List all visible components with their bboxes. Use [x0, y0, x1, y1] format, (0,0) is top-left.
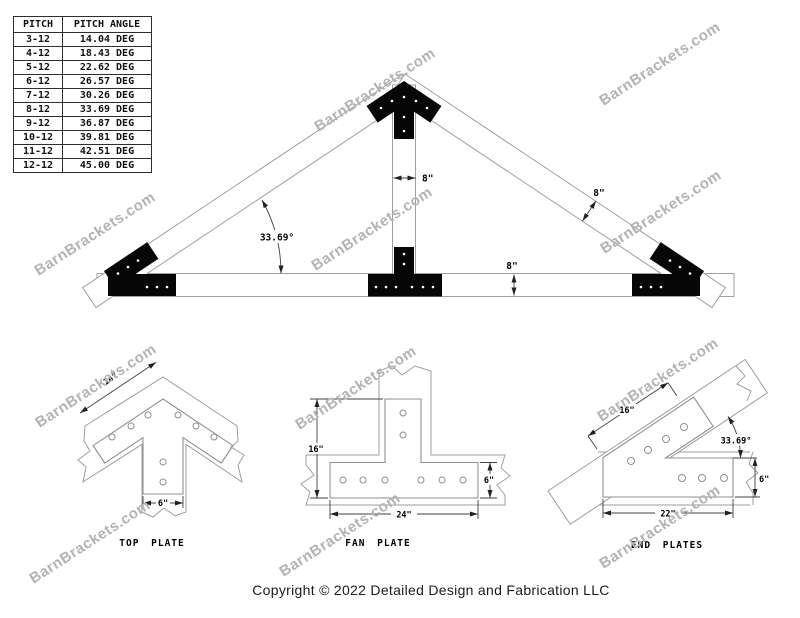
top-plate-leg-dim: 6" — [158, 499, 168, 509]
fan-plate-detail: 16" 24" 6" FAN PLATE — [301, 366, 510, 549]
fan-plate-holes — [340, 410, 466, 483]
drawing-sheet: PITCH PITCH ANGLE 3-1214.04 DEG4-1218.43… — [0, 0, 800, 618]
top-plate-holes — [109, 412, 217, 485]
truss-drawing: 33.69° 8" 8" 8" — [0, 0, 800, 618]
top-plate-detail: 14" 6" TOP PLATE — [78, 362, 244, 549]
fan-bracket — [368, 247, 442, 297]
end-plates-detail: 16" 33.69° 22" 6" END PLATES — [548, 360, 769, 552]
end-plate-arm-dim: 16" — [619, 406, 634, 416]
rafter-dim-label: 8" — [593, 188, 604, 199]
fan-plate-width-dim: 24" — [396, 511, 411, 521]
truss-angle-label: 33.69° — [260, 233, 294, 244]
peak-bracket — [367, 81, 442, 139]
fan-plate-title: FAN PLATE — [345, 538, 410, 549]
king-post-dim-label: 8" — [422, 174, 433, 185]
top-plate-title: TOP PLATE — [119, 538, 184, 549]
copyright-text: Copyright © 2022 Detailed Design and Fab… — [131, 582, 731, 598]
top-plate-arm-dim: 14" — [102, 371, 120, 388]
end-plate-length-dim: 22" — [660, 510, 675, 520]
fan-plate-height-dim: 16" — [308, 445, 323, 455]
end-plates-title: END PLATES — [631, 540, 703, 551]
fan-plate-dims — [310, 399, 497, 519]
fan-plate-side-dim: 6" — [484, 476, 494, 486]
top-plate-dims — [80, 362, 183, 508]
end-plate-side-dim: 6" — [759, 475, 769, 485]
end-plate-angle-label: 33.69° — [721, 437, 752, 447]
chord-dim-label: 8" — [506, 261, 517, 272]
